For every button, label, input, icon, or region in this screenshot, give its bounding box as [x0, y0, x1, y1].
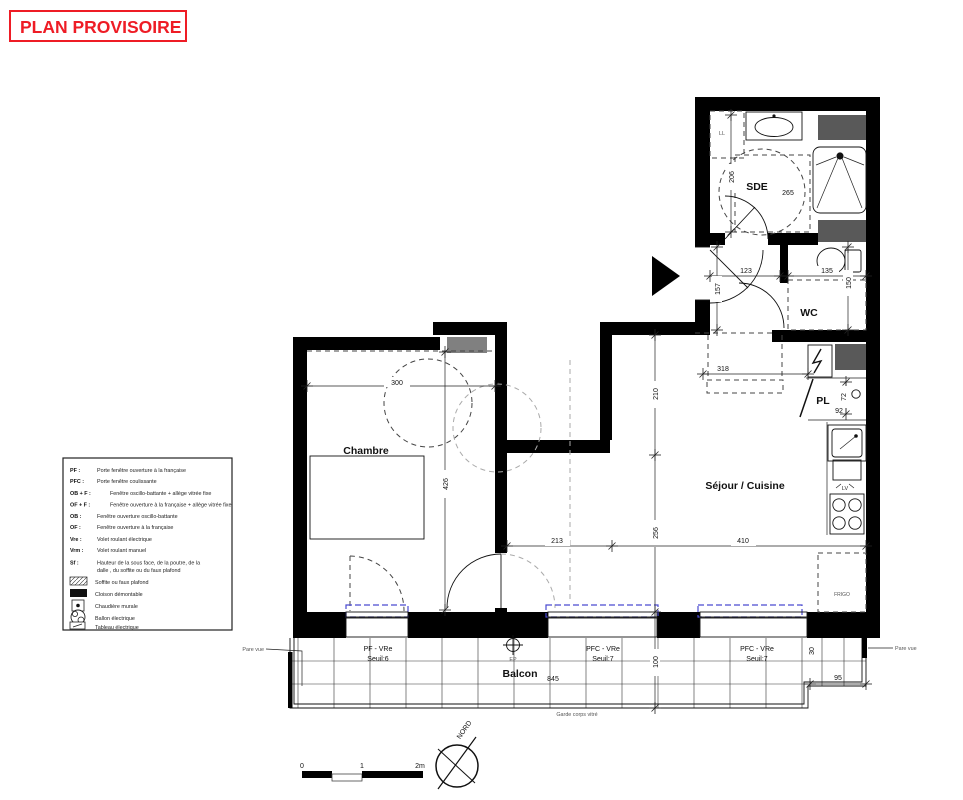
- legend-key-pfc: PFC :: [70, 479, 84, 485]
- shower: [813, 147, 866, 213]
- svg-text:Tableau électrique: Tableau électrique: [95, 625, 139, 631]
- svg-text:Cloison démontable: Cloison démontable: [95, 592, 143, 598]
- entry-soffit: [707, 380, 783, 393]
- dim-chambre-h: 426: [443, 478, 450, 490]
- shaft-kitchen: [835, 344, 866, 370]
- pare-vue-right: Pare vue: [868, 646, 917, 652]
- water-heater-icon: [852, 390, 860, 398]
- lightning-icon: [813, 349, 821, 373]
- sde-soffit: [735, 155, 810, 232]
- sejour-label: Séjour / Cuisine: [705, 480, 785, 492]
- svg-text:Volet roulant électrique: Volet roulant électrique: [97, 537, 152, 543]
- window2-seuil: Seuil:7: [592, 656, 614, 663]
- svg-text:Ballon électrique: Ballon électrique: [95, 616, 135, 622]
- dim-sejour-w2: 410: [737, 538, 749, 545]
- shaft-sde-bottom: [818, 220, 866, 242]
- page-title: PLAN PROVISOIRE: [20, 17, 181, 37]
- window3-type: PFC - VRe: [740, 646, 774, 653]
- svg-text:Chaudière murale: Chaudière murale: [95, 604, 138, 610]
- dim-chambre-w: 300: [391, 380, 403, 387]
- svg-text:Fenêtre ouverture à la françai: Fenêtre ouverture à la française: [97, 525, 173, 531]
- shutter-box-sejour-1: [548, 618, 657, 637]
- legend-key-sf: Sf :: [70, 561, 79, 567]
- legend-key-pf: PF :: [70, 468, 80, 474]
- sill-sejour-2: [698, 605, 802, 617]
- svg-text:Fenêtre ouverture à la françai: Fenêtre ouverture à la française + allèg…: [110, 503, 232, 509]
- chambre-window-door: [350, 556, 404, 611]
- dim-sejour-h2: 256: [653, 527, 660, 539]
- chambre-room: [307, 351, 570, 611]
- chambre-turning-circle: [384, 359, 472, 447]
- dimensions: 300 426 206 265 123 157 135 150 318: [301, 109, 872, 714]
- stove: [830, 494, 864, 534]
- hatch-swatch: [70, 577, 87, 585]
- shutter-box-chambre: [346, 618, 408, 637]
- black-swatch: [70, 589, 87, 597]
- wc-door: [739, 283, 784, 328]
- sill-sejour-1: [546, 605, 658, 617]
- scale-1: 1: [360, 763, 364, 770]
- legend-key-ob: OB :: [70, 514, 82, 520]
- svg-text:Volet roulant manuel: Volet roulant manuel: [97, 548, 146, 554]
- ll-label: LL: [719, 131, 725, 137]
- frigo-label: FRIGO: [834, 592, 850, 598]
- window1-type: PF - VRe: [364, 646, 393, 653]
- pare-vue-screen-right: [862, 638, 867, 658]
- dim-balcon-d: 100: [653, 656, 660, 668]
- panel-icon: [70, 622, 85, 629]
- svg-text:Porte fenêtre coulissante: Porte fenêtre coulissante: [97, 479, 157, 485]
- dim-sde-w: 265: [782, 190, 794, 197]
- shaft-sde-top: [818, 115, 866, 140]
- fridge: FRIGO: [818, 553, 866, 612]
- wc-label: WC: [800, 307, 818, 319]
- wc-soffit: [788, 280, 866, 330]
- pare-vue-left: Pare vue: [242, 647, 302, 686]
- shutter-box-sejour-2: [700, 618, 807, 637]
- scale-0: 0: [300, 763, 304, 770]
- title-block: PLAN PROVISOIRE: [10, 11, 186, 41]
- window1-seuil: Seuil:6: [367, 656, 389, 663]
- dim-hall-w: 123: [740, 268, 752, 275]
- dim-pl-w: 92: [835, 408, 843, 415]
- washing-machine-space: [710, 111, 744, 158]
- window3-seuil: Seuil:7: [746, 656, 768, 663]
- svg-text:Pare vue: Pare vue: [895, 646, 917, 652]
- dim-balcon-r: 95: [834, 675, 842, 682]
- svg-text:Pare vue: Pare vue: [242, 647, 264, 653]
- walls: [293, 97, 880, 638]
- legend-key-vre: Vre :: [70, 537, 82, 543]
- dim-balcon-l: 845: [547, 676, 559, 683]
- electrical-panel: [808, 345, 832, 377]
- legend-key-off: OF + F :: [70, 503, 90, 509]
- scale-2m: 2m: [415, 763, 425, 770]
- pl-closet: [800, 376, 866, 420]
- ep-label: EP: [509, 657, 517, 663]
- dim-entry-w: 318: [717, 366, 729, 373]
- svg-text:Fenêtre oscillo-battante + all: Fenêtre oscillo-battante + allège vitrée…: [110, 491, 211, 497]
- dishwasher: LV: [833, 460, 861, 492]
- window2-type: PFC - VRe: [586, 646, 620, 653]
- dim-wc-h: 150: [846, 277, 853, 289]
- chambre-label: Chambre: [343, 445, 389, 457]
- legend-key-vrm: Vrm :: [70, 548, 84, 554]
- dim-wc-w: 135: [821, 268, 833, 275]
- dim-sejour-w1: 213: [551, 538, 563, 545]
- kitchen-sink: [828, 425, 866, 461]
- legend: PF : Porte fenêtre ouverture à la frança…: [63, 458, 232, 631]
- dim-sejour-h1: 210: [653, 388, 660, 400]
- pare-vue-screen-left: [288, 652, 293, 708]
- sde-label: SDE: [746, 181, 768, 193]
- dim-hall-h: 157: [715, 283, 722, 295]
- svg-text:Fenêtre ouverture oscillo-batt: Fenêtre ouverture oscillo-battante: [97, 514, 178, 520]
- ep-drain-icon: EP: [503, 635, 523, 663]
- legend-key-of: OF :: [70, 525, 81, 531]
- dim-pl-h: 72: [841, 393, 848, 401]
- pl-label: PL: [816, 395, 830, 407]
- legend-key-obf: OB + F :: [70, 491, 91, 497]
- north-compass: NORD: [436, 720, 478, 789]
- dim-sde-h: 206: [729, 171, 736, 183]
- bed: [310, 456, 424, 539]
- sill-chambre: [346, 605, 408, 617]
- entrance-arrow-icon: [652, 256, 680, 296]
- lv-label: LV: [842, 486, 849, 492]
- chambre-door: [447, 554, 555, 608]
- kitchen: LV FRIGO: [818, 422, 866, 612]
- svg-text:dalle , du soffite ou du faux: dalle , du soffite ou du faux plafond: [97, 568, 181, 574]
- svg-text:Hauteur de la sous face, de la: Hauteur de la sous face, de la poutre, d…: [97, 561, 200, 567]
- scale-bar: 0 1 2m: [300, 763, 425, 781]
- svg-text:Soffite ou faux plafond: Soffite ou faux plafond: [95, 580, 149, 586]
- garde-corps-label: Garde corps vitré: [556, 712, 597, 718]
- balcon-label: Balcon: [502, 668, 537, 680]
- svg-text:Porte fenêtre ouverture à la f: Porte fenêtre ouverture à la française: [97, 468, 186, 474]
- dim-balcon-step: 30: [809, 647, 816, 655]
- floor-plan-canvas: PLAN PROVISOIRE: [0, 0, 963, 800]
- nord-label: NORD: [456, 720, 474, 741]
